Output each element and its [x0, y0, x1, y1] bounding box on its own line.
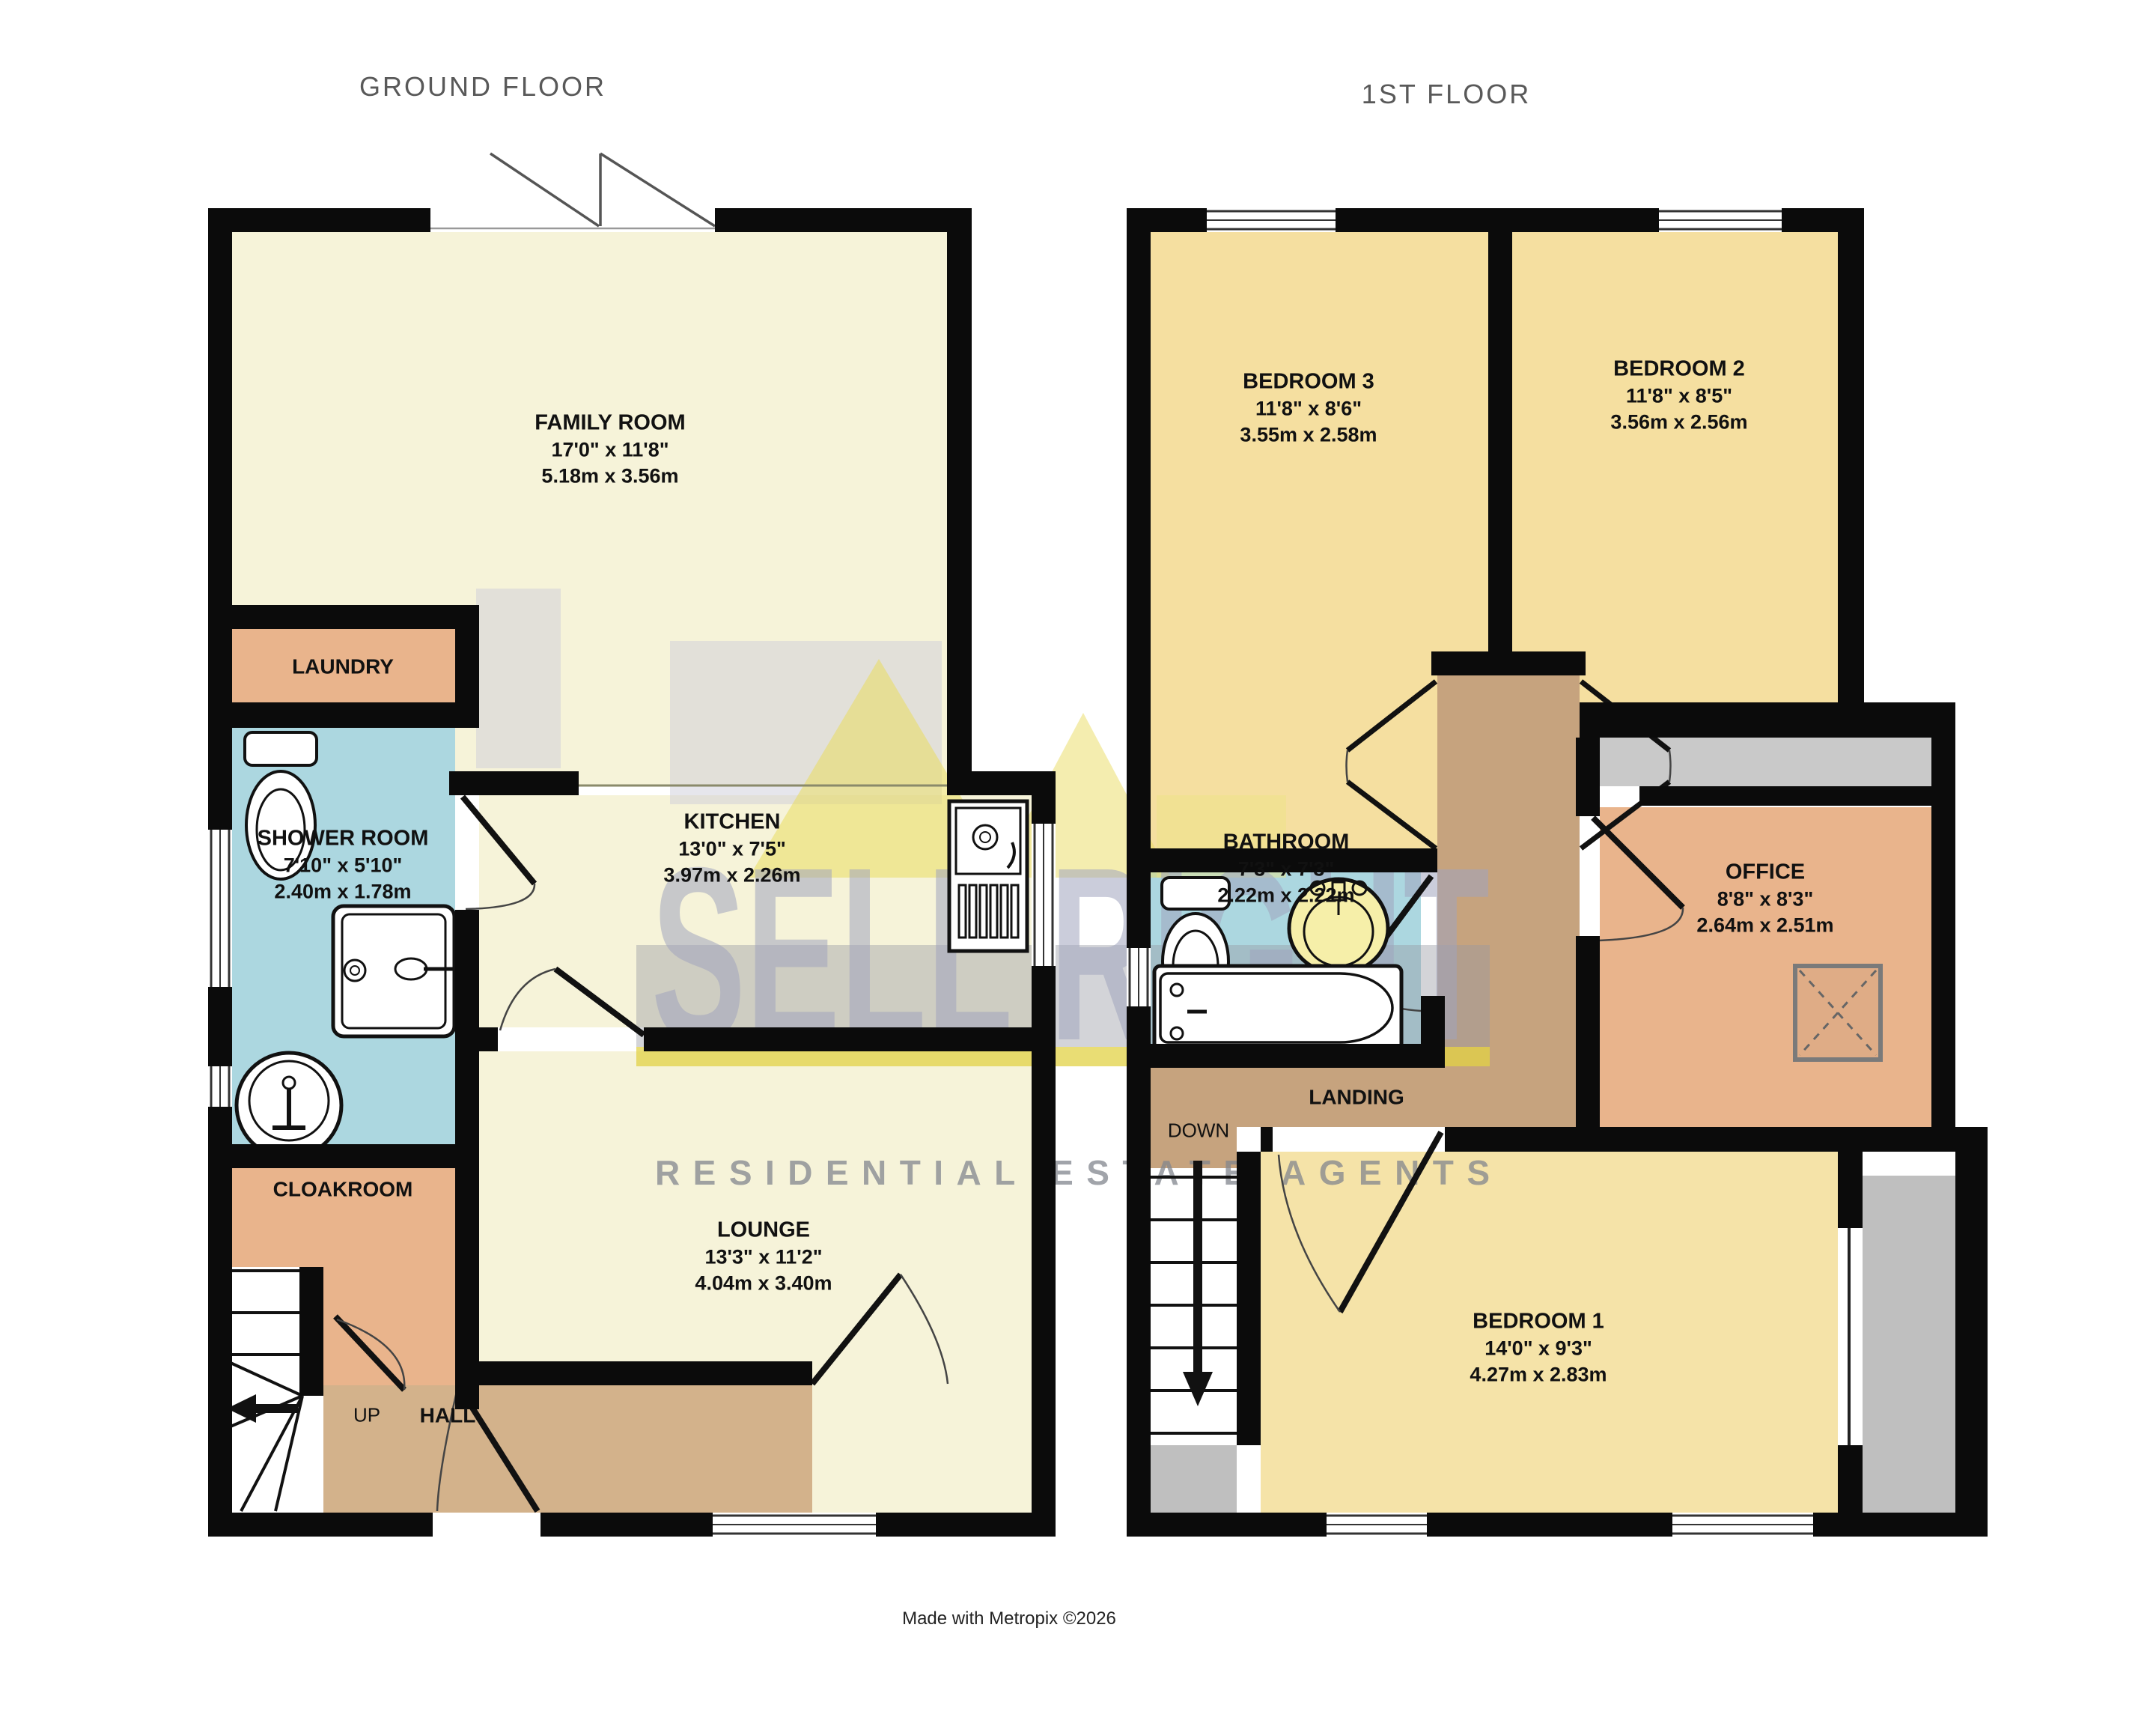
eaves-gray	[1863, 1176, 1955, 1513]
bathtub-icon	[1154, 966, 1401, 1050]
stairs-down-label: DOWN	[1168, 1119, 1229, 1143]
bedroom2-area	[1512, 232, 1838, 702]
lounge-label: LOUNGE 13'3" x 11'2" 4.04m x 3.40m	[695, 1217, 832, 1297]
office-label: OFFICE 8'8" x 8'3" 2.64m x 2.51m	[1696, 859, 1833, 939]
bedroom3-label: BEDROOM 3 11'8" x 8'6" 3.55m x 2.58m	[1240, 368, 1377, 449]
loft-hatch-icon	[1795, 966, 1881, 1060]
watermark-square-small	[476, 589, 561, 768]
understairs-gray	[1151, 1445, 1237, 1513]
floorplan-page: GROUND FLOOR 1ST FLOOR	[0, 0, 2156, 1735]
basin-icon	[237, 1053, 341, 1158]
first-floor-stairs-down-arrow	[1183, 1161, 1213, 1406]
bathroom-label: BATHROOM 7'3" x 7'3" 2.22m x 2.22m	[1217, 829, 1354, 909]
landing-label: LANDING	[1309, 1084, 1404, 1111]
laundry-label: LAUNDRY	[292, 653, 394, 681]
bedroom1-label: BEDROOM 1 14'0" x 9'3" 4.27m x 2.83m	[1470, 1308, 1607, 1388]
shower-room-label: SHOWER ROOM 7'10" x 5'10" 2.40m x 1.78m	[258, 825, 429, 905]
french-doors	[430, 154, 715, 228]
shower-icon	[333, 906, 458, 1036]
kitchen-sink-icon	[949, 801, 1027, 951]
bedroom2-label: BEDROOM 2 11'8" x 8'5" 3.56m x 2.56m	[1610, 356, 1747, 436]
stairs-up-label: UP	[353, 1404, 380, 1427]
kitchen-label: KITCHEN 13'0" x 7'5" 3.97m x 2.26m	[663, 809, 800, 889]
family-room-label: FAMILY ROOM 17'0" x 11'8" 5.18m x 3.56m	[535, 410, 685, 490]
cloakroom-label: CLOAKROOM	[273, 1176, 413, 1203]
office-storage-gray	[1600, 738, 1931, 786]
hall-label: HALL	[420, 1402, 476, 1429]
